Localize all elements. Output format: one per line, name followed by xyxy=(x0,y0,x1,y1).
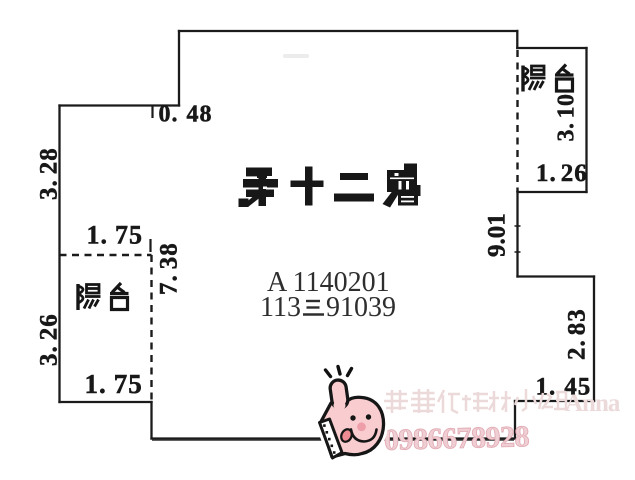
svg-text:7.38: 7.38 xyxy=(156,242,183,295)
svg-text:1.26: 1.26 xyxy=(536,160,588,187)
svg-text:1.75: 1.75 xyxy=(85,369,143,399)
svg-text:Anna: Anna xyxy=(565,390,621,417)
svg-text:3.26: 3.26 xyxy=(36,313,63,366)
svg-text:9.01: 9.01 xyxy=(484,213,511,257)
svg-text:0986678928: 0986678928 xyxy=(384,420,530,457)
svg-text:2.83: 2.83 xyxy=(564,308,591,360)
svg-text:3.28: 3.28 xyxy=(36,147,63,200)
svg-text:113: 113 xyxy=(260,292,301,323)
svg-text:3.10: 3.10 xyxy=(554,94,580,142)
svg-text:1.75: 1.75 xyxy=(87,221,144,250)
svg-text:91039: 91039 xyxy=(326,292,396,323)
